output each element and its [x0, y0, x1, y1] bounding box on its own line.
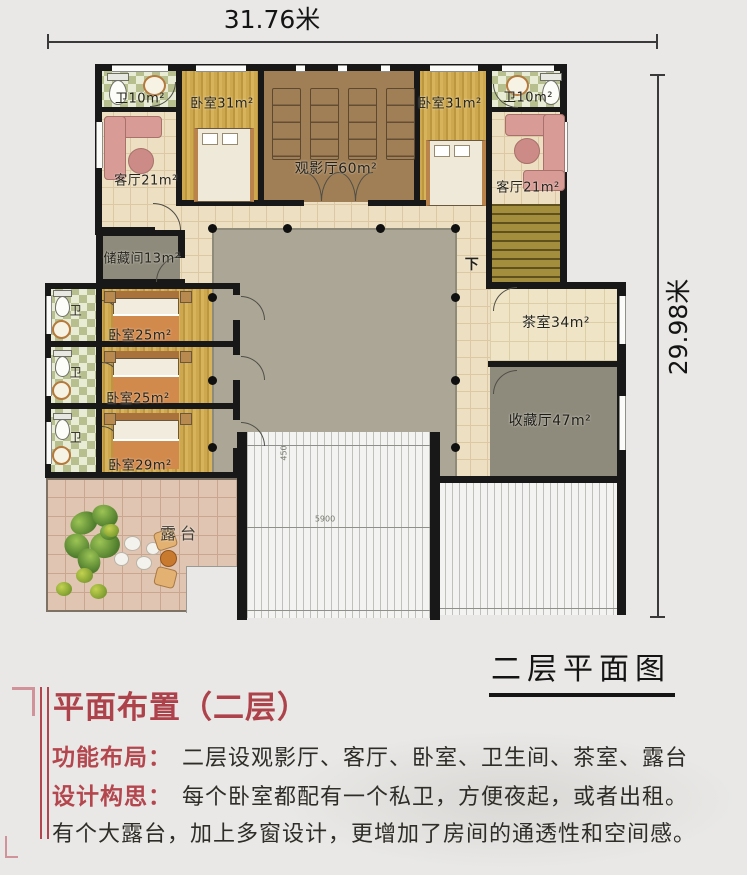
stone: [114, 552, 129, 566]
room-label-bedroom-mid-2: 卧室25m²: [106, 388, 169, 407]
stone: [136, 556, 152, 570]
description-text-2: 每个卧室都配有一个私卫，方便夜起，或者出租。: [182, 785, 688, 810]
window: [619, 396, 626, 450]
cinema-seat-row: [348, 88, 377, 160]
wall: [233, 380, 240, 420]
room-label-terrace: 露台: [160, 520, 200, 544]
roof-dim-5900: 5900: [315, 515, 335, 524]
sink-icon: [52, 381, 71, 400]
wall: [258, 200, 304, 206]
window: [46, 422, 52, 464]
dimension-tick: [656, 34, 658, 49]
sink-icon: [52, 446, 71, 465]
dimension-tick: [47, 34, 49, 49]
roof-left: [247, 432, 430, 618]
width-dimension-line: [48, 41, 658, 43]
room-label-collection-hall: 收藏厅47m²: [509, 410, 592, 430]
dimension-tick: [650, 616, 665, 618]
window: [96, 122, 103, 168]
ottoman: [514, 138, 540, 164]
nightstand: [180, 291, 192, 303]
plan-caption: 二层平面图: [489, 644, 675, 697]
roof-ridge-line: [247, 610, 430, 611]
pillow: [434, 145, 450, 157]
plant-tuft: [90, 584, 107, 599]
plant-tuft: [76, 568, 93, 583]
wall: [430, 432, 440, 620]
toilet-icon: [55, 356, 70, 377]
column-dot: [208, 293, 217, 302]
pillow: [202, 133, 218, 145]
roof-dim-450: 450: [280, 445, 289, 460]
column-dot: [451, 224, 460, 233]
window: [381, 65, 390, 72]
roof-ridge-line: [247, 527, 430, 528]
description-line-1: 功能布局：二层设观影厅、客厅、卧室、卫生间、茶室、露台: [52, 738, 688, 772]
wall: [96, 230, 103, 285]
height-dimension-label: 29.98米: [659, 279, 695, 376]
wall: [368, 200, 420, 206]
nightstand: [180, 351, 192, 363]
wall: [95, 107, 182, 112]
wall: [258, 64, 264, 206]
description-line-2: 设计构思：每个卧室都配有一个私卫，方便夜起，或者出租。: [52, 777, 688, 811]
wall: [233, 283, 240, 295]
toilet-icon: [55, 296, 70, 317]
terrace-table: [160, 550, 177, 567]
wall: [488, 361, 626, 367]
plant-tuft: [56, 582, 72, 596]
room-label-bedroom-bottom: 卧室29m²: [108, 455, 171, 474]
window: [619, 296, 626, 344]
column-dot: [451, 376, 460, 385]
floor-plan-page: 31.76米 29.98米 5900 450: [0, 0, 747, 875]
room-label-bath-small-1: 卫: [70, 302, 83, 319]
wall: [438, 476, 626, 483]
wall: [486, 64, 492, 206]
room-label-bedroom-top-left: 卧室31m²: [190, 93, 253, 112]
description-line-3: 有个大露台，加上多窗设计，更增加了房间的通透性和空间感。: [52, 816, 696, 848]
window: [430, 65, 478, 72]
roof-ridge-line: [247, 445, 430, 446]
nightstand: [180, 413, 192, 425]
room-label-bath-top-left: 卫10m²: [115, 88, 165, 107]
sink-icon: [52, 320, 71, 339]
room-label-bath-small-3: 卫: [70, 429, 83, 446]
wall: [488, 107, 567, 112]
wall: [45, 283, 240, 289]
wall: [486, 204, 492, 284]
headboard: [113, 291, 179, 299]
column-dot: [283, 224, 292, 233]
window: [338, 65, 347, 72]
room-label-bedroom-top-right: 卧室31m²: [418, 93, 481, 112]
column-dot: [208, 224, 217, 233]
stone: [124, 536, 141, 551]
window: [502, 65, 554, 72]
window: [196, 65, 246, 72]
room-label-living-left: 客厅21m²: [114, 170, 177, 189]
description-label-2: 设计构思：: [52, 784, 172, 810]
bed: [194, 128, 254, 202]
room-label-bedroom-mid-1: 卧室25m²: [108, 325, 171, 344]
description-text-1: 二层设观影厅、客厅、卧室、卫生间、茶室、露台: [182, 746, 688, 771]
width-dimension-label: 31.76米: [224, 0, 321, 36]
column-dot: [208, 443, 217, 452]
roof-ridge-line: [438, 608, 618, 609]
pillow: [222, 133, 238, 145]
room-label-bath-top-right: 卫10m²: [503, 87, 553, 106]
description-text-3: 有个大露台，加上多窗设计，更增加了房间的通透性和空间感。: [52, 822, 696, 847]
staircase: [489, 204, 561, 282]
bracket-ornament-icon: [5, 836, 18, 858]
headboard: [113, 351, 179, 359]
roof-right: [438, 483, 618, 615]
nightstand: [104, 413, 116, 425]
column-dot: [208, 376, 217, 385]
cinema-seat-row: [386, 88, 415, 160]
wall: [233, 320, 240, 355]
column-dot: [451, 443, 460, 452]
window: [112, 65, 168, 72]
description-title: 平面布置（二层）: [53, 682, 309, 727]
bracket-ornament-icon: [12, 687, 35, 716]
column-dot: [451, 293, 460, 302]
toilet-icon: [55, 419, 70, 440]
cinema-seat-row: [272, 88, 301, 160]
plant-tuft: [104, 524, 119, 537]
wall: [96, 230, 185, 236]
height-dimension-line: [657, 75, 659, 618]
stairs-down-label: 下: [465, 254, 480, 274]
room-label-tea-room: 茶室34m²: [522, 312, 590, 332]
column-dot: [376, 224, 385, 233]
headboard: [113, 413, 179, 421]
room-label-bath-small-2: 卫: [70, 364, 83, 381]
nightstand: [104, 351, 116, 363]
room-label-cinema: 观影厅60m²: [295, 158, 378, 178]
pillow: [454, 145, 470, 157]
description-label-1: 功能布局：: [52, 745, 172, 771]
terrace-notch: [186, 566, 241, 613]
wall: [237, 432, 247, 620]
nightstand: [104, 291, 116, 303]
bracket-ornament-icon: [40, 687, 49, 839]
dimension-tick: [650, 74, 665, 76]
room-label-storage: 储藏间13m²: [104, 248, 181, 267]
window: [296, 65, 305, 72]
bed: [426, 140, 486, 206]
cinema-seat-row: [310, 88, 339, 160]
room-label-living-right: 客厅21m²: [496, 177, 559, 196]
